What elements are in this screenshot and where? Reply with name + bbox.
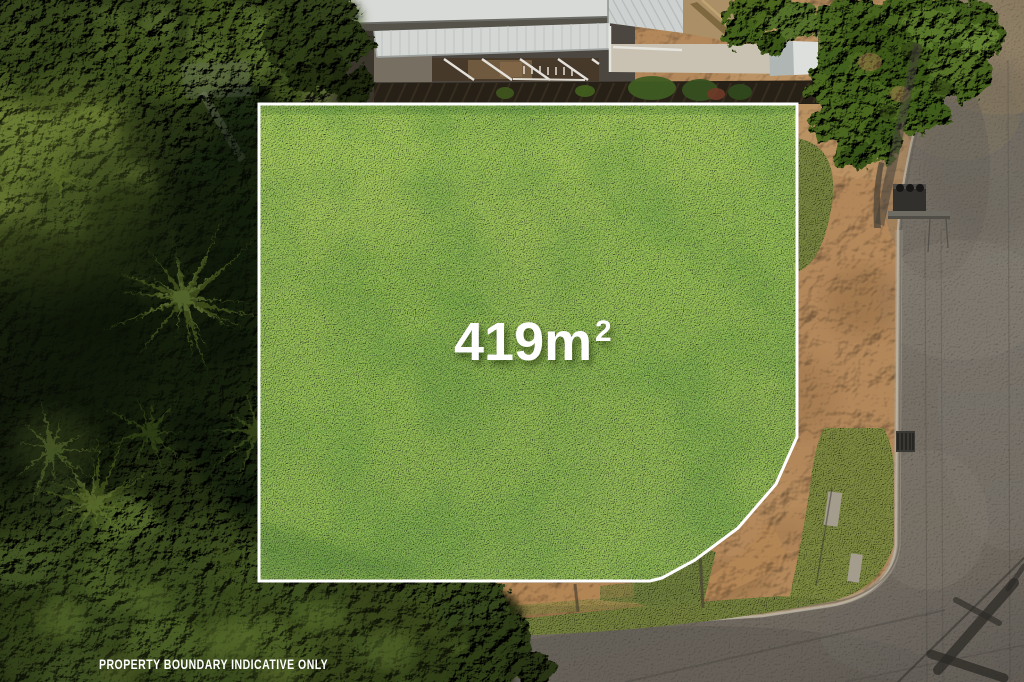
svg-text:2: 2 <box>595 315 612 348</box>
svg-text:PROPERTY BOUNDARY INDICATIVE O: PROPERTY BOUNDARY INDICATIVE ONLY <box>99 657 328 673</box>
svg-text:419m: 419m <box>454 312 592 372</box>
